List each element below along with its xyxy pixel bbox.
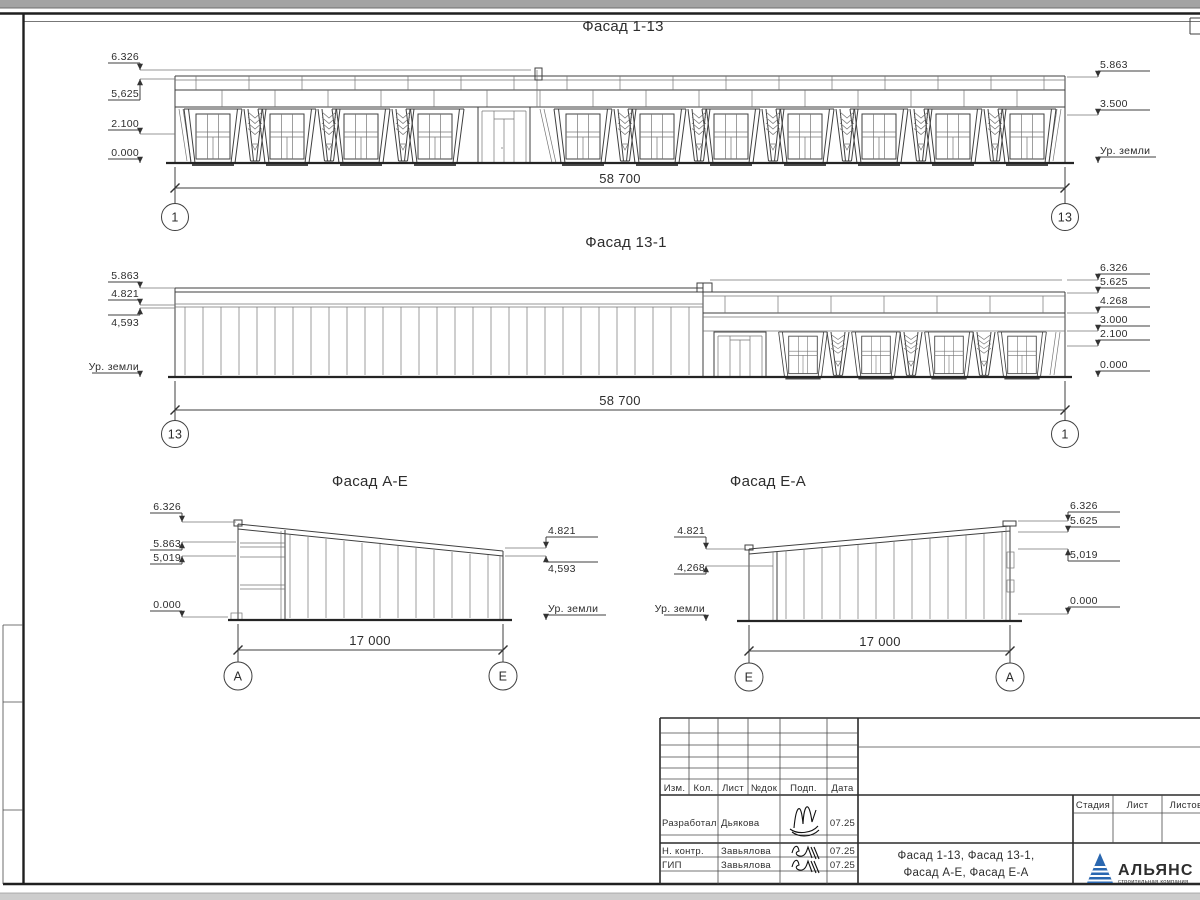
level-lines bbox=[140, 70, 531, 134]
elevation-mark: 4.268 bbox=[1100, 295, 1128, 307]
tb-col-ndok: №док bbox=[751, 783, 778, 794]
mark-arrow bbox=[137, 79, 143, 85]
screen-bottom-edge bbox=[0, 893, 1200, 900]
elevation-mark: 4,593 bbox=[548, 563, 576, 575]
tb-role-gip: ГИП bbox=[662, 860, 682, 871]
signature-developer bbox=[790, 807, 819, 836]
entrance bbox=[714, 332, 766, 377]
window-module bbox=[702, 109, 760, 166]
elevation-mark: 4.821 bbox=[548, 525, 576, 537]
mark-arrow bbox=[1095, 307, 1101, 313]
facade-1-13-dimension: 58 700 1 13 bbox=[162, 167, 1079, 231]
tb-date-ncontrol: 07.25 bbox=[830, 846, 855, 857]
elevation-mark: 5.863 bbox=[1100, 59, 1128, 71]
elevation-mark: Ур. земли bbox=[1100, 145, 1150, 157]
mark-arrow bbox=[703, 543, 709, 549]
facade-a-e-building bbox=[228, 520, 512, 620]
elevation-mark: Ур. земли bbox=[548, 603, 598, 615]
window-module bbox=[406, 109, 464, 166]
drawing-canvas: Фасад 1-13 bbox=[0, 0, 1200, 900]
roof-unit bbox=[535, 68, 542, 80]
elevation-mark: 6.326 bbox=[1070, 500, 1098, 512]
window-module bbox=[258, 109, 316, 166]
tb-col-data: Дата bbox=[831, 783, 854, 794]
v-pilaster bbox=[392, 109, 414, 161]
end-bay-lines bbox=[749, 527, 1006, 621]
window-module bbox=[924, 109, 982, 166]
axis-label: А bbox=[1006, 671, 1015, 685]
facade-e-a-building bbox=[737, 521, 1022, 621]
mark-arrow bbox=[1095, 71, 1101, 77]
elevation-mark: 0.000 bbox=[1100, 359, 1128, 371]
v-pilaster bbox=[836, 109, 858, 161]
tb-date-developer: 07.25 bbox=[830, 818, 855, 829]
level-lines bbox=[140, 288, 175, 308]
elevation-mark: 4.821 bbox=[111, 288, 139, 300]
elevation-mark: 0.000 bbox=[111, 147, 139, 159]
mark-arrow bbox=[1065, 608, 1071, 614]
elevation-mark: 6.326 bbox=[1100, 262, 1128, 274]
tb-col-sheets: Листов bbox=[1170, 800, 1200, 811]
elevation-mark: 5,019 bbox=[1070, 549, 1098, 561]
tb-col-stage: Стадия bbox=[1076, 800, 1110, 811]
sheet-title-line1: Фасад 1-13, Фасад 13-1, bbox=[898, 850, 1035, 862]
axis-label: Е bbox=[745, 671, 754, 685]
facade-a-e-dimension: 17 000 А Е bbox=[224, 624, 517, 690]
v-pilaster bbox=[973, 332, 995, 375]
tb-date-gip: 07.25 bbox=[830, 860, 855, 871]
axis-label: А bbox=[234, 670, 243, 684]
siding-panels bbox=[786, 532, 1002, 619]
elevation-mark: 4,593 bbox=[111, 317, 139, 329]
facade-a-e-title: Фасад А-Е bbox=[332, 473, 408, 490]
elevation-mark: 5,625 bbox=[111, 88, 139, 100]
front-panel-joints bbox=[703, 296, 1065, 375]
axis-label: Е bbox=[499, 670, 508, 684]
tb-name-gip: Завьялова bbox=[721, 860, 771, 871]
facade-a-e: Фасад А-Е 6.326 5.863 5,019 0.000 bbox=[150, 473, 606, 690]
mark-arrow bbox=[543, 542, 549, 548]
siding-panels bbox=[175, 304, 703, 375]
rear-wall-outline bbox=[175, 283, 703, 377]
window-module bbox=[998, 109, 1056, 166]
mark-arrow bbox=[137, 308, 143, 314]
level-lines bbox=[1067, 77, 1098, 115]
axis-label: 13 bbox=[168, 428, 183, 442]
facade-13-1-left-marks: 5.863 4.821 4,593 Ур. земли bbox=[89, 270, 175, 377]
window-module bbox=[998, 332, 1047, 379]
elevation-mark: Ур. земли bbox=[655, 603, 705, 615]
window-module bbox=[850, 109, 908, 166]
corner-stamp-box bbox=[1190, 18, 1200, 34]
elevation-mark: 5.625 bbox=[1100, 276, 1128, 288]
elevation-mark: 3.000 bbox=[1100, 314, 1128, 326]
elevation-mark: 5.863 bbox=[153, 538, 181, 550]
mark-arrow bbox=[543, 556, 549, 562]
elevation-mark: 2.100 bbox=[1100, 328, 1128, 340]
facade-13-1-building bbox=[168, 280, 1072, 379]
elevation-mark: 0.000 bbox=[153, 599, 181, 611]
facade-13-1-title: Фасад 13-1 bbox=[585, 234, 667, 251]
mark-arrow bbox=[1095, 340, 1101, 346]
window-module bbox=[852, 332, 901, 379]
gable-outline bbox=[238, 524, 503, 620]
v-pilaster bbox=[688, 109, 710, 161]
elevation-mark: Ур. земли bbox=[89, 361, 139, 373]
tb-col-list: Лист bbox=[722, 783, 744, 794]
elevation-mark: 5.863 bbox=[111, 270, 139, 282]
axis-label: 1 bbox=[1061, 428, 1068, 442]
mark-arrow bbox=[703, 615, 709, 621]
gable-outline bbox=[749, 526, 1010, 621]
level-lines bbox=[1018, 521, 1068, 614]
screen-top-edge bbox=[0, 0, 1200, 8]
logo-company-subtitle: строительная компания bbox=[1118, 879, 1189, 885]
tb-name-developer: Дьякова bbox=[721, 818, 760, 829]
elevation-mark: 2.100 bbox=[111, 118, 139, 130]
elevation-mark: 3.500 bbox=[1100, 98, 1128, 110]
facade-e-a-left-marks: 4.821 4,268 Ур. земли bbox=[655, 525, 749, 621]
tb-role-ncontrol: Н. контр. bbox=[662, 846, 704, 857]
facade-1-13-right-marks: 5.863 3.500 Ур. земли bbox=[1067, 59, 1156, 163]
logo-company-name: АЛЬЯНС bbox=[1118, 862, 1194, 879]
v-pilaster bbox=[318, 109, 340, 161]
elevation-mark: 4.821 bbox=[677, 525, 705, 537]
level-lines bbox=[1067, 280, 1098, 346]
mark-arrow bbox=[1095, 371, 1101, 377]
dimension-value: 17 000 bbox=[349, 633, 391, 648]
entrance bbox=[478, 107, 530, 163]
elevation-mark: 6.326 bbox=[111, 51, 139, 63]
facade-a-e-left-marks: 6.326 5.863 5,019 0.000 bbox=[150, 501, 236, 617]
dimension-value: 58 700 bbox=[599, 171, 641, 186]
tb-col-izm: Изм. bbox=[664, 783, 686, 794]
facade-1-13-building bbox=[166, 68, 1074, 166]
level-lines bbox=[182, 522, 236, 617]
elevation-mark: 5.625 bbox=[1070, 515, 1098, 527]
company-logo: АЛЬЯНС строительная компания bbox=[1085, 853, 1194, 885]
blueprint-sheet: Фасад 1-13 bbox=[0, 0, 1200, 900]
v-pilaster bbox=[984, 109, 1006, 161]
window-module bbox=[332, 109, 390, 166]
tb-col-podp: Подп. bbox=[790, 783, 817, 794]
facade-13-1-dimension: 58 700 13 1 bbox=[162, 381, 1079, 448]
elevation-mark: 0.000 bbox=[1070, 595, 1098, 607]
window-module bbox=[184, 109, 242, 166]
dimension-value: 58 700 bbox=[599, 393, 641, 408]
mark-arrow bbox=[1095, 157, 1101, 163]
v-pilaster bbox=[900, 332, 922, 375]
elevation-mark: 6.326 bbox=[153, 501, 181, 513]
level-lines bbox=[505, 548, 546, 556]
sheet-title-line2: Фасад А-Е, Фасад Е-А bbox=[903, 867, 1028, 879]
facade-13-1: Фасад 13-1 bbox=[89, 234, 1150, 448]
window-module bbox=[925, 332, 974, 379]
facade-e-a-title: Фасад Е-А bbox=[730, 473, 806, 490]
mark-arrow bbox=[179, 516, 185, 522]
tb-name-ncontrol: Завьялова bbox=[721, 846, 771, 857]
v-pilaster bbox=[827, 332, 849, 375]
window-module bbox=[628, 109, 686, 166]
window-module bbox=[554, 109, 612, 166]
elevation-mark: 4,268 bbox=[677, 562, 705, 574]
tb-col-sheet: Лист bbox=[1127, 800, 1149, 811]
siding-panels bbox=[290, 535, 488, 618]
v-pilaster bbox=[244, 109, 266, 161]
mark-arrow bbox=[137, 64, 143, 70]
level-lines bbox=[706, 549, 749, 566]
v-pilaster bbox=[910, 109, 932, 161]
facade-e-a-right-marks: 6.326 5.625 5,019 0.000 bbox=[1018, 500, 1120, 614]
end-bay-lines bbox=[240, 531, 500, 620]
facade-e-a-dimension: 17 000 Е А bbox=[735, 625, 1024, 691]
facade-13-1-right-marks: 6.326 5.625 4.268 3.000 2.100 0.000 bbox=[1067, 262, 1150, 377]
tb-role-developer: Разработал bbox=[662, 818, 717, 829]
axis-label: 1 bbox=[171, 211, 178, 225]
parapet-cap-right bbox=[1003, 521, 1016, 526]
left-margin-boxes bbox=[3, 625, 23, 884]
tb-col-kol: Кол. bbox=[694, 783, 714, 794]
facade-1-13: Фасад 1-13 bbox=[108, 18, 1156, 231]
facade-1-13-title: Фасад 1-13 bbox=[582, 18, 664, 35]
facade-e-a: Фасад Е-А 4.821 4,268 Ур. земли bbox=[655, 473, 1120, 691]
v-pilaster bbox=[762, 109, 784, 161]
v-pilaster bbox=[614, 109, 636, 161]
dimension-value: 17 000 bbox=[859, 634, 901, 649]
facade-a-e-right-marks: 4.821 4,593 Ур. земли bbox=[505, 525, 606, 620]
mark-arrow bbox=[179, 611, 185, 617]
window-module bbox=[776, 109, 834, 166]
window-module bbox=[779, 332, 828, 379]
title-block: Изм. Кол. Лист №док Подп. Дата Разработа… bbox=[660, 718, 1200, 885]
elevation-mark: 5,019 bbox=[153, 552, 181, 564]
axis-label: 13 bbox=[1058, 211, 1073, 225]
